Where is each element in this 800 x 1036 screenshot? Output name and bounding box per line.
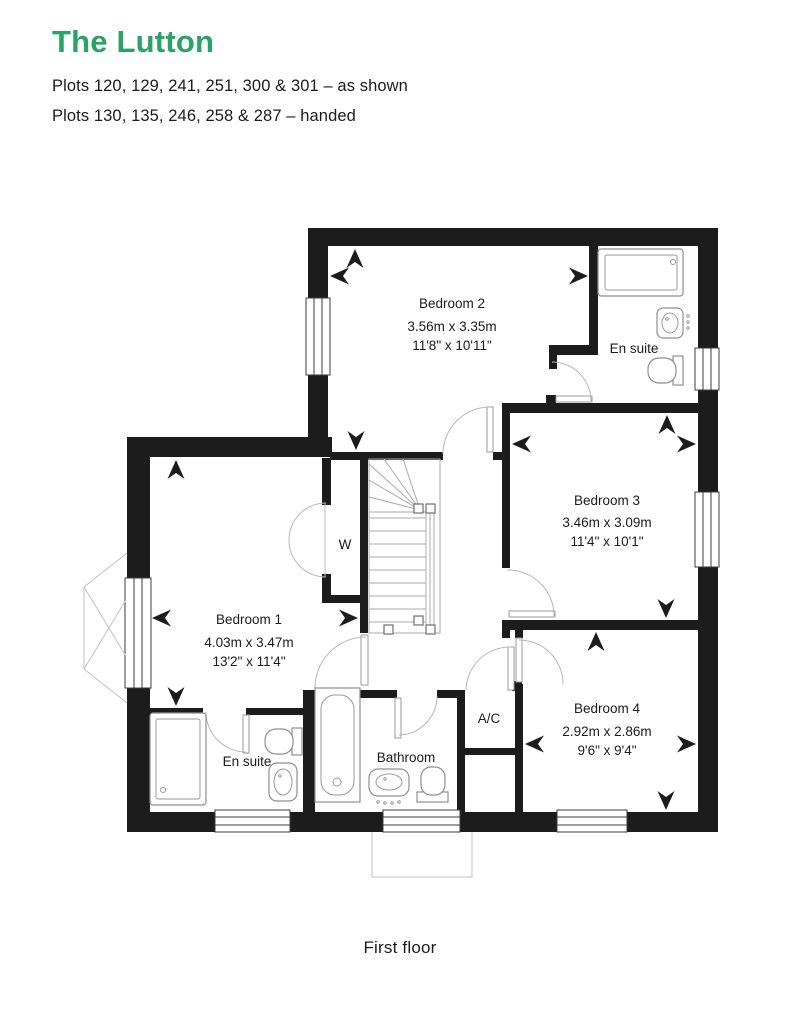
- bedroom2-label: Bedroom 2: [419, 296, 485, 311]
- ensuite-top-label: En suite: [610, 341, 659, 356]
- porch-outline: [372, 832, 472, 877]
- toilet-symbol: [648, 356, 683, 385]
- wall: [502, 630, 510, 638]
- wall: [698, 567, 718, 832]
- door-swing: [395, 696, 437, 738]
- bedroom3-label: Bedroom 3: [574, 493, 640, 508]
- window: [557, 810, 627, 832]
- room-labels: Bedroom 2 3.56m x 3.35m 11'8" x 10'11" E…: [204, 296, 658, 769]
- bedroom2-imperial: 11'8" x 10'11": [412, 338, 492, 353]
- dimension-arrow-up: [588, 632, 605, 651]
- bath-symbol: [315, 688, 360, 802]
- dimension-arrow-right: [569, 268, 588, 285]
- dimension-arrow-right: [677, 736, 696, 753]
- airing-cupboard-label: A/C: [478, 711, 501, 726]
- wardrobe-label: W: [339, 537, 352, 552]
- bedroom4-label: Bedroom 4: [574, 701, 641, 716]
- window: [383, 810, 460, 832]
- dimension-arrow-up: [168, 460, 185, 479]
- wall: [127, 812, 215, 832]
- floor-caption: First floor: [0, 938, 800, 958]
- wall: [322, 595, 367, 603]
- shower-symbol: [150, 713, 206, 805]
- wall: [589, 246, 598, 347]
- bedroom4-imperial: 9'6" x 9'4": [577, 743, 636, 758]
- shower-symbol: [598, 249, 683, 296]
- wall: [502, 403, 718, 413]
- toilet-symbol: [417, 767, 448, 802]
- window: [695, 348, 719, 390]
- wall: [127, 457, 150, 578]
- dimension-arrow-left: [152, 610, 171, 627]
- door-swing: [552, 362, 592, 402]
- bedroom1-imperial: 13'2" x 11'4": [212, 654, 285, 669]
- window: [215, 810, 290, 832]
- ensuite-bottom-label: En suite: [223, 754, 272, 769]
- wall: [127, 688, 150, 832]
- bedroom3-metric: 3.46m x 3.09m: [562, 515, 651, 530]
- wall: [515, 630, 523, 638]
- bedroom1-label: Bedroom 1: [216, 612, 282, 627]
- dimension-arrow-down: [658, 599, 675, 618]
- bay-roof-outline: [84, 553, 127, 703]
- wall: [360, 452, 368, 633]
- floor-plan: Bedroom 2 3.56m x 3.35m 11'8" x 10'11" E…: [0, 0, 800, 1036]
- wall: [308, 246, 328, 298]
- window: [695, 492, 719, 567]
- wall: [290, 812, 383, 832]
- bedroom1-metric: 4.03m x 3.47m: [204, 635, 293, 650]
- wall: [127, 437, 332, 457]
- wall: [246, 708, 312, 715]
- bathroom-label: Bathroom: [377, 750, 436, 765]
- window: [125, 578, 151, 688]
- bathroom-fixtures: [315, 688, 448, 804]
- bedroom4-metric: 2.92m x 2.86m: [562, 724, 651, 739]
- bedroom2-metric: 3.56m x 3.35m: [407, 319, 496, 334]
- wall: [502, 413, 510, 568]
- door-swing: [443, 407, 493, 454]
- door-swing: [516, 638, 563, 684]
- dimension-arrow-right: [339, 610, 358, 627]
- door-swing: [507, 570, 555, 617]
- door-swing: [315, 635, 368, 688]
- sink-symbol: [657, 308, 689, 338]
- dimension-arrow-down: [168, 687, 185, 706]
- wall: [698, 246, 718, 348]
- wall: [549, 345, 598, 355]
- wall: [627, 812, 718, 832]
- wall: [460, 812, 557, 832]
- door-swing: [206, 712, 249, 753]
- dimension-arrow-left: [330, 268, 349, 285]
- toilet-symbol: [265, 728, 302, 755]
- stairs-symbol: [369, 459, 440, 634]
- door-swing: [466, 647, 514, 690]
- ensuite-top-fixtures: [598, 249, 689, 385]
- dimension-arrow-up: [347, 249, 364, 268]
- dimension-arrow-left: [525, 736, 544, 753]
- dimension-arrow-down: [348, 431, 365, 450]
- dimension-arrow-left: [512, 436, 531, 453]
- dimension-arrow-right: [677, 436, 696, 453]
- bedroom3-imperial: 11'4" x 10'1": [570, 534, 643, 549]
- window: [306, 298, 330, 375]
- wall: [308, 375, 328, 437]
- wall: [322, 458, 331, 505]
- sink-symbol: [369, 769, 409, 804]
- wall: [502, 620, 718, 630]
- dimension-arrow-up: [659, 415, 676, 434]
- wall: [457, 748, 523, 755]
- wall: [308, 228, 718, 246]
- wardrobe-door-swing: [289, 503, 326, 577]
- sink-symbol: [269, 763, 297, 801]
- dimension-arrow-down: [658, 791, 675, 810]
